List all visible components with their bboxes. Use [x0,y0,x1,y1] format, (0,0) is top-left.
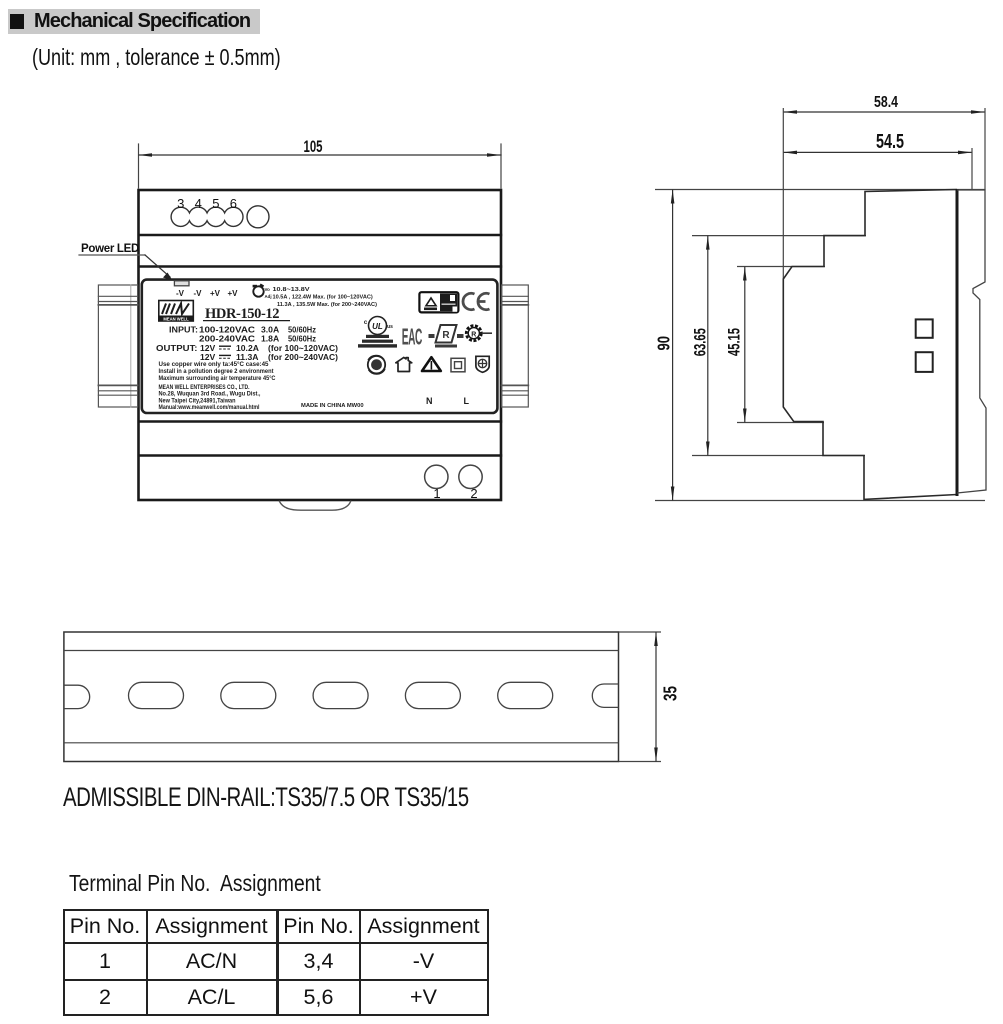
svg-text:5: 5 [212,196,219,211]
svg-text:Use copper wire only ta:45°C: Use copper wire only ta:45°C case:45 [159,362,270,368]
svg-text:Maximum surrounding air temper: Maximum surrounding air temperature 45°C [159,376,277,382]
svg-text:L: L [464,396,470,406]
svg-text:HDR-150-12: HDR-150-12 [205,306,279,322]
svg-text:us: us [387,324,393,330]
svg-text:63.65: 63.65 [691,328,710,356]
svg-text:R: R [442,330,450,341]
svg-text:+V: +V [210,289,221,298]
svg-text:Install in a pollution degree: Install in a pollution degree 2 environm… [159,369,274,375]
svg-text:MEAN WELL ENTERPRISES CO., LTD: MEAN WELL ENTERPRISES CO., LTD. [159,385,250,391]
svg-text:3: 3 [177,196,184,211]
svg-text:1: 1 [433,486,440,501]
svg-text:EAC: EAC [402,324,423,350]
svg-text:11.3A , 135.5W Max. (for 200~2: 11.3A , 135.5W Max. (for 200~240VAC) [277,302,377,308]
svg-text:200-240VAC: 200-240VAC [199,333,255,343]
svg-text:R: R [471,332,476,339]
svg-text:-V: -V [194,289,203,298]
svg-text:105: 105 [304,137,323,156]
svg-text:No.28, Wuquan 3rd Road., Wugu: No.28, Wuquan 3rd Road., Wugu Dist., [159,392,261,398]
svg-text:45.15: 45.15 [725,328,744,356]
svg-text:INPUT:: INPUT: [169,324,198,334]
svg-text:-V: -V [176,289,185,298]
svg-text:UL: UL [372,322,383,331]
svg-text:Vo: Vo [265,287,271,292]
svg-text:90: 90 [654,336,674,351]
svg-text:Power LED: Power LED [81,243,139,255]
svg-text:11.3A: 11.3A [236,352,258,362]
svg-text:Adj: Adj [265,294,272,299]
svg-text:58.4: 58.4 [874,94,898,111]
svg-text:MADE IN CHINA MW00: MADE IN CHINA MW00 [301,403,364,409]
svg-text:35: 35 [661,686,681,701]
svg-text:New Taipei City,24891,Taiwan: New Taipei City,24891,Taiwan [159,398,236,404]
svg-text:50/60Hz: 50/60Hz [288,333,316,343]
svg-text:2: 2 [470,486,477,501]
svg-text:12V: 12V [200,352,216,362]
svg-text:N: N [426,396,433,406]
svg-text:6: 6 [230,196,237,211]
svg-text:10.5A , 122.4W Max. (for 100~1: 10.5A , 122.4W Max. (for 100~120VAC) [273,295,373,301]
svg-text:54.5: 54.5 [876,131,904,153]
svg-text:OUTPUT:: OUTPUT: [156,343,198,353]
svg-text:+V: +V [227,289,238,298]
svg-text:MEAN WELL: MEAN WELL [163,316,189,321]
svg-text:(for 200~240VAC): (for 200~240VAC) [268,352,338,362]
svg-text:10.8~13.8V: 10.8~13.8V [273,287,310,293]
svg-text:4: 4 [195,196,202,211]
svg-text:1.8A: 1.8A [261,333,279,343]
svg-text:Manual:www.meanwell.com/manual: Manual:www.meanwell.com/manual.html [159,405,260,411]
